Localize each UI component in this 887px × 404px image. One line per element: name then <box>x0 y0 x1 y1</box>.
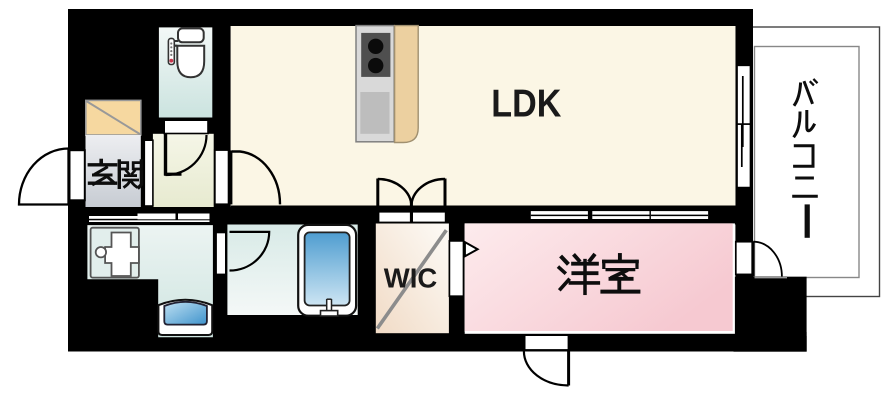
svg-text:WIC: WIC <box>384 263 438 294</box>
svg-text:LDK: LDK <box>491 83 561 126</box>
